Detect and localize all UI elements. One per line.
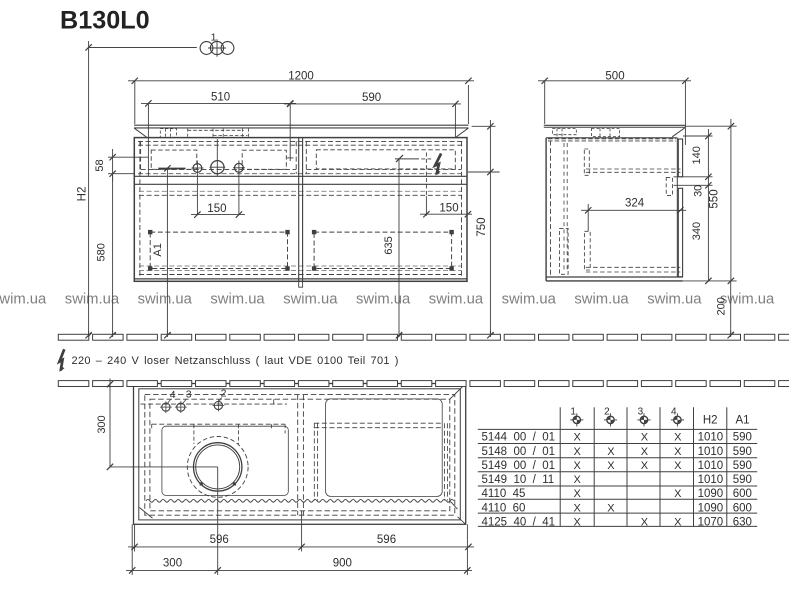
- svg-text:750: 750: [476, 218, 488, 237]
- svg-text:150: 150: [207, 203, 226, 215]
- svg-text:1: 1: [211, 32, 217, 44]
- svg-text:30: 30: [693, 185, 705, 197]
- svg-text:swim.ua: swim.ua: [210, 292, 265, 308]
- svg-text:1: 1: [570, 407, 576, 418]
- svg-text:X: X: [574, 446, 582, 458]
- svg-text:3: 3: [638, 407, 644, 418]
- svg-text:X: X: [574, 516, 582, 528]
- svg-text:596: 596: [210, 534, 229, 546]
- svg-text:X: X: [641, 516, 649, 528]
- svg-text:X: X: [574, 432, 582, 444]
- svg-text:5148 00 / 01: 5148 00 / 01: [482, 446, 556, 458]
- svg-text:X: X: [574, 502, 582, 514]
- svg-text:200: 200: [716, 297, 728, 315]
- svg-text:580: 580: [96, 243, 108, 261]
- svg-text:X: X: [607, 446, 615, 458]
- svg-text:4110 45: 4110 45: [482, 488, 526, 500]
- svg-text:X: X: [574, 488, 582, 500]
- svg-text:150: 150: [439, 203, 458, 215]
- svg-text:swim.ua: swim.ua: [502, 292, 557, 308]
- svg-text:140: 140: [691, 146, 703, 164]
- svg-text:X: X: [674, 460, 682, 472]
- svg-text:1200: 1200: [288, 70, 314, 82]
- svg-text:X: X: [574, 474, 582, 486]
- svg-text:58: 58: [94, 159, 106, 171]
- svg-text:B130L0: B130L0: [60, 6, 150, 34]
- svg-text:590: 590: [362, 92, 381, 104]
- svg-text:4: 4: [170, 389, 176, 401]
- svg-text:324: 324: [625, 198, 645, 210]
- svg-text:swim.ua: swim.ua: [283, 292, 338, 308]
- svg-text:1010: 1010: [698, 446, 724, 458]
- svg-text:600: 600: [733, 502, 752, 514]
- svg-text:A1: A1: [735, 414, 749, 426]
- svg-text:swim.ua: swim.ua: [429, 292, 484, 308]
- svg-text:X: X: [641, 432, 649, 444]
- svg-text:X: X: [574, 460, 582, 472]
- svg-text:600: 600: [733, 488, 752, 500]
- svg-text:X: X: [674, 516, 682, 528]
- svg-text:510: 510: [211, 91, 230, 103]
- svg-text:590: 590: [733, 474, 752, 486]
- svg-text:1010: 1010: [698, 460, 724, 472]
- svg-text:swim.ua: swim.ua: [647, 292, 702, 308]
- svg-text:635: 635: [383, 236, 395, 254]
- svg-text:swim.ua: swim.ua: [65, 292, 120, 308]
- svg-text:1090: 1090: [698, 502, 724, 514]
- svg-text:3: 3: [186, 388, 192, 400]
- svg-text:630: 630: [733, 516, 752, 528]
- svg-text:1010: 1010: [698, 432, 724, 444]
- svg-text:1070: 1070: [698, 516, 724, 528]
- svg-text:596: 596: [377, 534, 396, 546]
- svg-text:340: 340: [691, 222, 703, 240]
- svg-text:2: 2: [604, 407, 610, 418]
- svg-text:swim.ua: swim.ua: [356, 292, 411, 308]
- svg-text:X: X: [607, 460, 615, 472]
- svg-text:swim.ua: swim.ua: [138, 292, 193, 308]
- svg-text:900: 900: [333, 557, 352, 569]
- svg-text:X: X: [674, 446, 682, 458]
- svg-text:5149 10 / 11: 5149 10 / 11: [482, 474, 555, 486]
- svg-text:X: X: [641, 460, 649, 472]
- svg-text:X: X: [641, 446, 649, 458]
- svg-text:swim.ua: swim.ua: [720, 292, 775, 308]
- svg-text:500: 500: [605, 70, 624, 82]
- svg-text:H2: H2: [77, 187, 89, 202]
- svg-text:H2: H2: [703, 414, 718, 426]
- svg-text:1090: 1090: [698, 488, 724, 500]
- svg-text:300: 300: [163, 557, 182, 569]
- svg-text:590: 590: [733, 460, 752, 472]
- svg-text:590: 590: [733, 446, 752, 458]
- svg-text:X: X: [674, 488, 682, 500]
- svg-text:590: 590: [733, 432, 752, 444]
- svg-text:swim.ua: swim.ua: [0, 292, 47, 308]
- svg-text:A1: A1: [152, 243, 164, 256]
- svg-text:220 – 240 V loser Netzanschlus: 220 – 240 V loser Netzanschluss ( laut V…: [72, 355, 399, 367]
- svg-text:1010: 1010: [698, 474, 724, 486]
- svg-text:550: 550: [708, 189, 720, 208]
- svg-text:300: 300: [96, 415, 108, 433]
- svg-text:X: X: [607, 502, 615, 514]
- svg-text:4: 4: [671, 407, 677, 418]
- svg-text:swim.ua: swim.ua: [574, 292, 629, 308]
- svg-text:4110 60: 4110 60: [482, 502, 526, 514]
- svg-text:X: X: [674, 432, 682, 444]
- svg-text:5144 00 / 01: 5144 00 / 01: [482, 432, 556, 444]
- svg-text:5149 00 / 01: 5149 00 / 01: [482, 460, 556, 472]
- svg-text:4125 40 / 41: 4125 40 / 41: [482, 516, 556, 528]
